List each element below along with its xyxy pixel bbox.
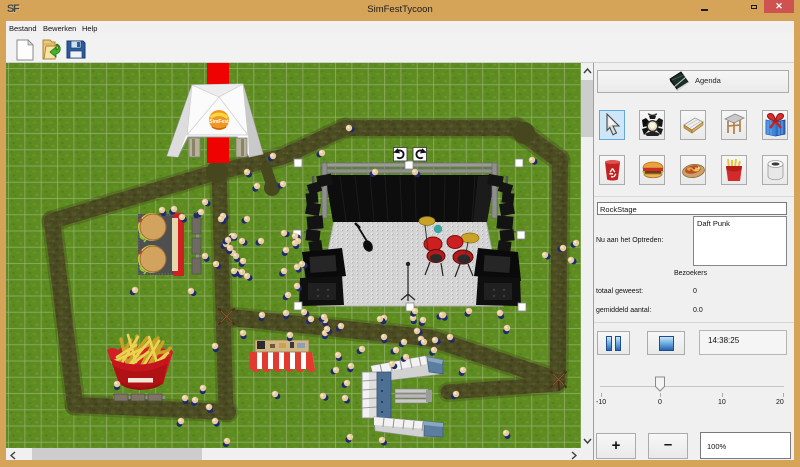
svg-text:SimFest: SimFest — [209, 119, 229, 125]
